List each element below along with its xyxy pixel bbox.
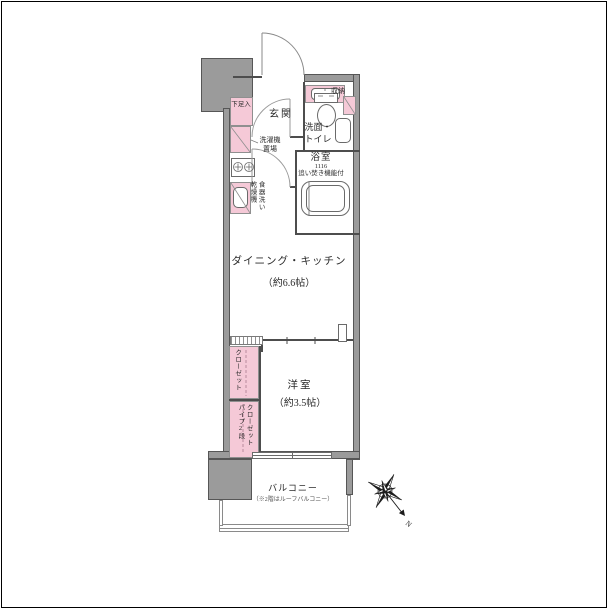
stove-icon [231,158,255,177]
entry-door-icon [262,33,304,75]
floorplan-canvas: N 玄関 下足入 収納 洗面・ トイレ 浴室 1116 追い焚き機能付 洗濯機 … [0,0,608,609]
wall-balcony-stub-right [346,459,353,495]
closet-upper-label-box: クローゼット [230,349,243,397]
wall-block-bottom-left [208,459,252,500]
closet-lower-label-1: クローゼット [244,404,252,456]
balcony-rail-left [219,500,223,526]
wall-bath-top [295,150,360,152]
dishwasher-label-1: 食器洗い [256,181,264,229]
wall-top-right [304,74,360,82]
wall-bath-left [295,150,297,235]
wall-closet-front [259,346,261,458]
closet-lower-label-box: クローゼット パイプ2段 [232,404,256,456]
dk-area-label: （約6.6帖） [263,278,316,290]
closet-upper-label: クローゼット [232,349,240,397]
wall-right [353,74,360,460]
dishwasher-label-box: 食器洗い 乾燥機 [246,181,266,229]
balcony-note-label: （※2階はルーフバルコニー） [253,497,334,504]
window-mullion [292,452,293,459]
washroom-label-1: 洗面・ [304,122,331,132]
door-pocket [338,324,347,342]
washer-space-box [230,126,251,153]
wall-entry-stub [233,76,262,78]
laundry-label-1: 洗濯機 [260,136,281,144]
bedroom-area-label: （約3.5帖） [274,398,327,410]
bathtub-inner [306,185,345,212]
washroom-label-2: トイレ [304,134,331,144]
shoe-cabinet-label: 下足入 [231,101,251,108]
bedroom-label: 洋室 [288,380,313,392]
dk-label: ダイニング・キッチン [232,256,347,268]
storage-closet-box [343,96,356,115]
bathroom-note-label: 追い焚き機能付 [298,170,344,177]
sliding-door-track [230,336,263,345]
balcony-rail-right [347,495,351,526]
wall-corridor-stub [290,186,296,188]
compass-north-label: N [404,519,414,530]
wall-hall-stub [290,136,304,138]
genkan-label: 玄関 [269,109,293,121]
closet-lower-label-2: パイプ2段 [236,404,244,456]
dishwasher-label-2: 乾燥機 [248,181,256,229]
laundry-label-2: 置場 [263,145,277,153]
washbasin-icon [335,118,351,143]
storage-label: 収納 [331,87,345,95]
balcony-label: バルコニー [268,483,318,493]
compass-icon: N [359,465,414,529]
balcony-rail-midline [219,528,349,529]
wall-bath-bottom [295,233,360,235]
